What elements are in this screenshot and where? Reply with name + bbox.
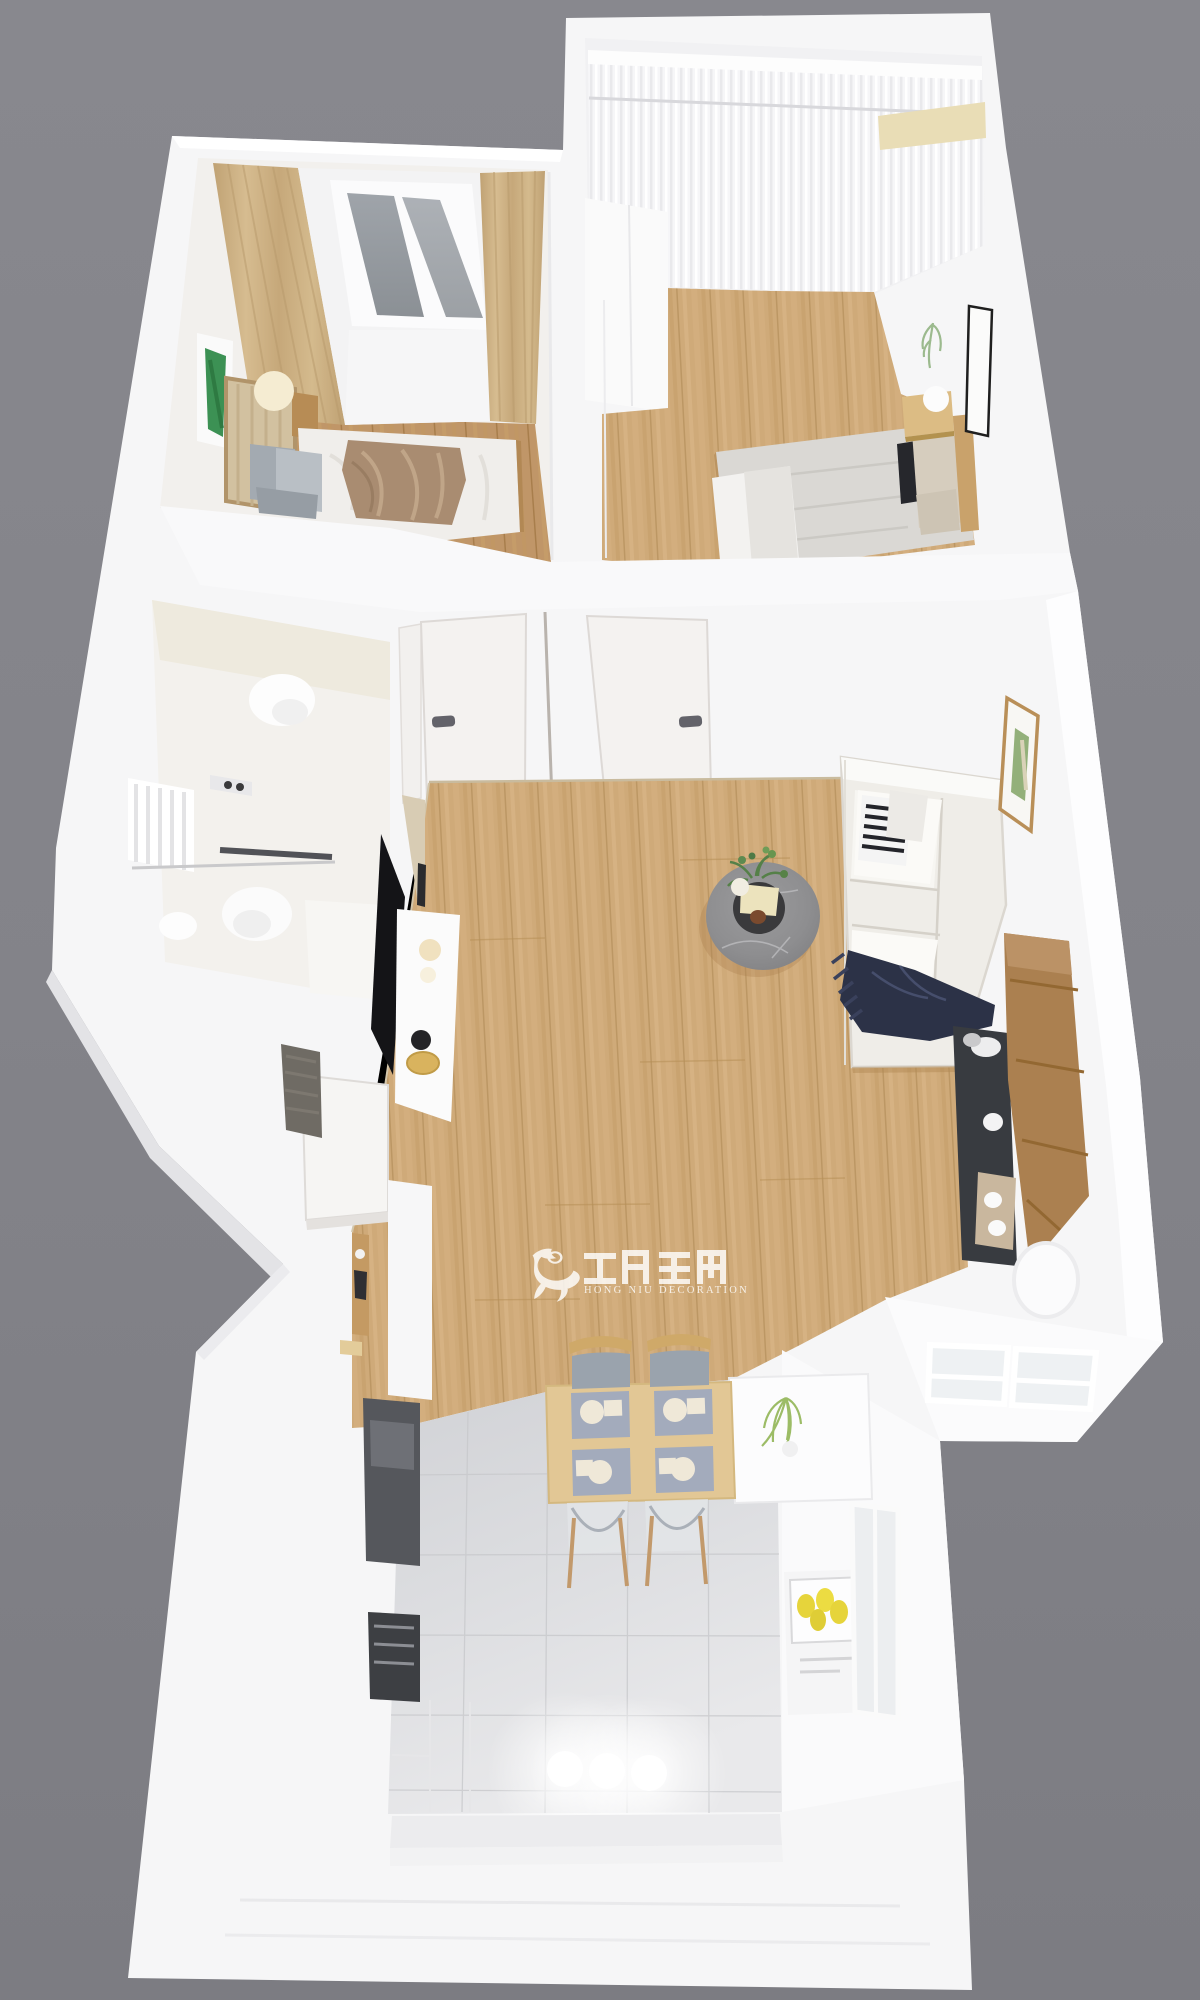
svg-text:HONG NIU DECORATION: HONG NIU DECORATION [584,1285,749,1296]
